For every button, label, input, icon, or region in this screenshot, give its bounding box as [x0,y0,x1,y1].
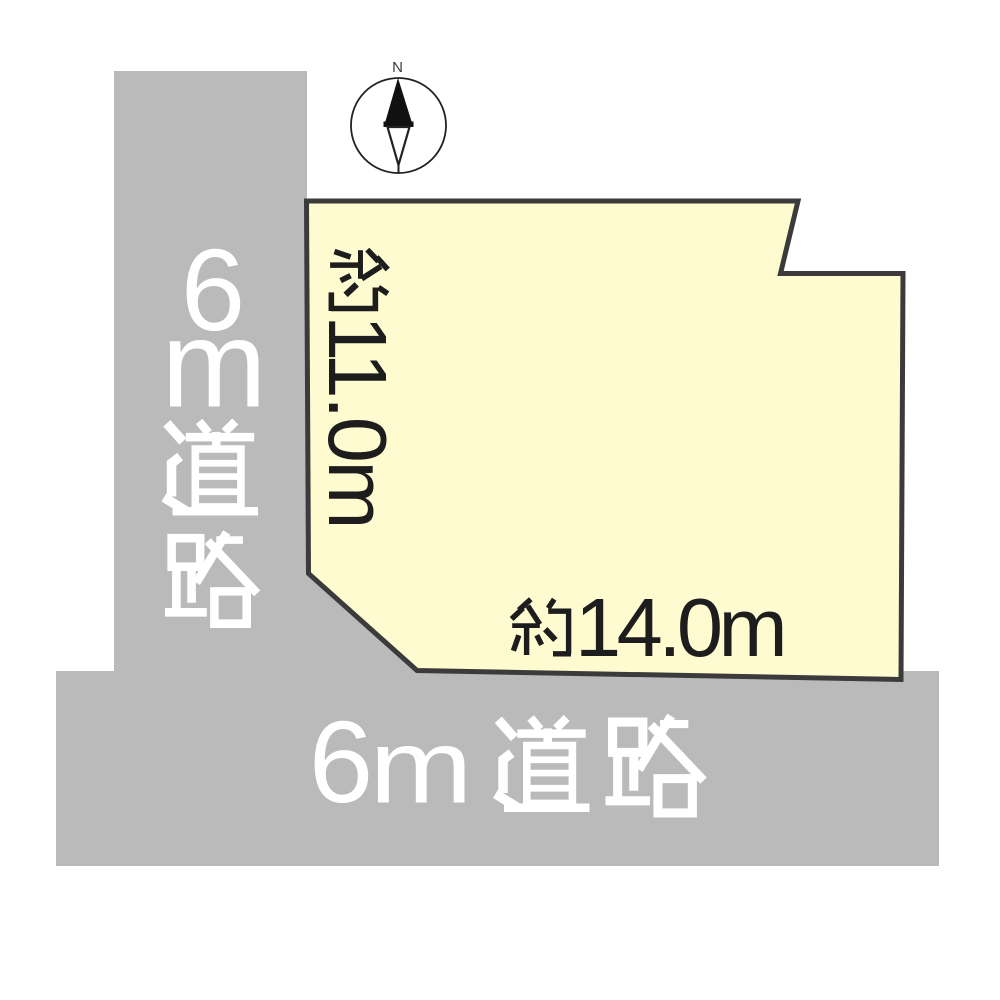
svg-text:N: N [392,59,403,76]
